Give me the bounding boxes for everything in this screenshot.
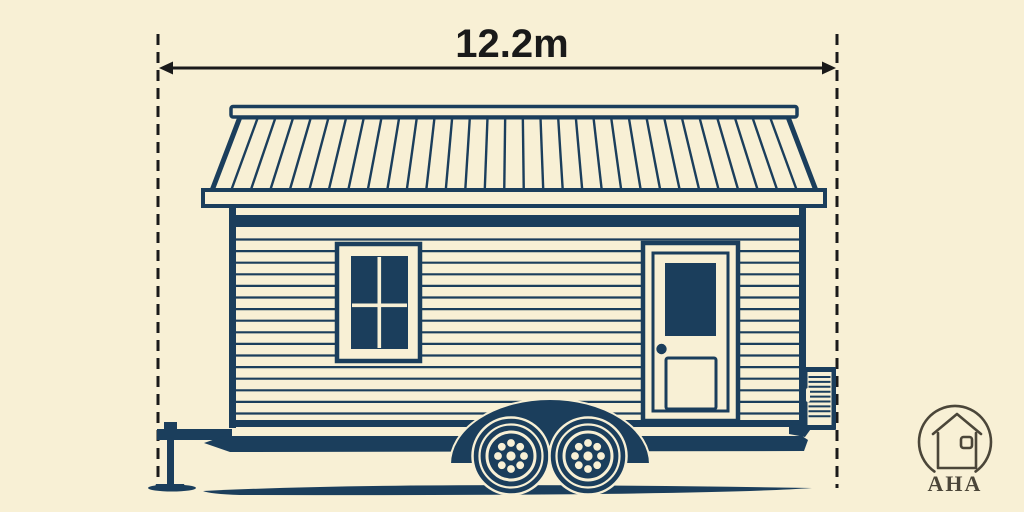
fascia-board — [203, 190, 825, 206]
wall-corner-left — [229, 206, 236, 428]
aha-logo: AHA — [919, 406, 991, 496]
door — [643, 243, 738, 421]
wheel-left — [473, 418, 550, 495]
window-muntin-horizontal — [352, 304, 407, 308]
house-icon — [933, 414, 981, 468]
diagram-canvas: 12.2m — [0, 0, 1024, 512]
window-muntin-vertical — [378, 257, 382, 348]
jack-foot — [154, 484, 186, 489]
trailer-hitch — [154, 422, 232, 489]
tiny-house-dimension-diagram: 12.2m — [0, 0, 1024, 512]
ac-louvers — [809, 377, 831, 416]
tiny-house — [203, 107, 836, 438]
wheel-right — [550, 418, 627, 495]
ac-side-slot — [806, 388, 810, 402]
window — [337, 244, 420, 361]
roof — [203, 107, 825, 207]
roof-slope — [212, 117, 816, 191]
jack-crank — [164, 422, 177, 430]
dimension-label: 12.2m — [455, 22, 568, 66]
ground-shadow — [148, 485, 812, 496]
arrow-right-icon — [822, 62, 836, 75]
jack-post — [167, 440, 174, 484]
eave-shadow-band — [230, 215, 806, 227]
ridge-cap — [231, 107, 797, 118]
logo-text: AHA — [928, 471, 983, 496]
door-window-pane — [665, 263, 716, 336]
arrow-left-icon — [159, 62, 173, 75]
door-knob — [656, 344, 666, 354]
ac-bracket — [789, 424, 813, 437]
